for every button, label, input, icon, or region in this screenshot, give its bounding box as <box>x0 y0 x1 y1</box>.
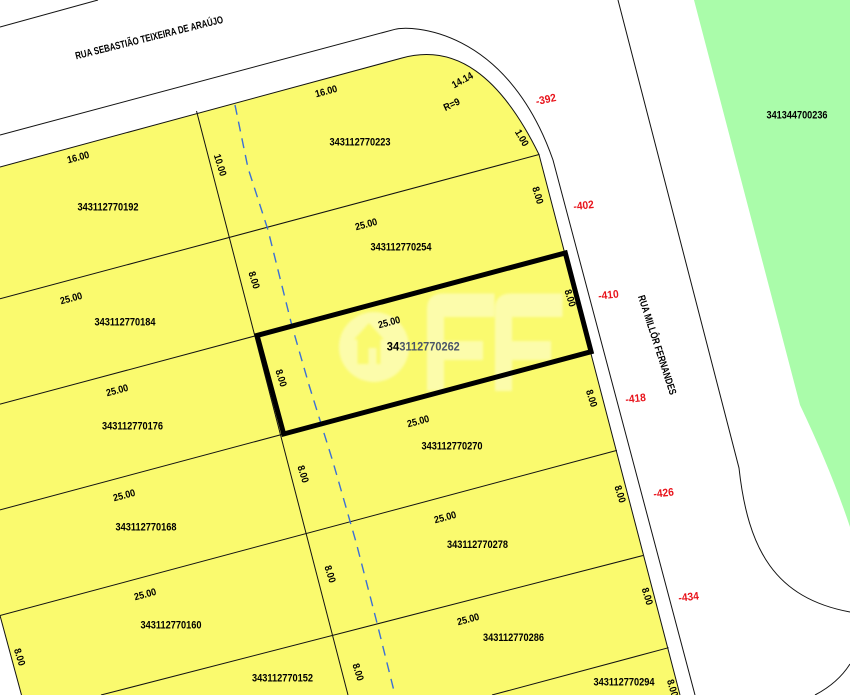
svg-text:-418: -418 <box>625 392 647 406</box>
svg-text:343112770270: 343112770270 <box>422 441 483 453</box>
svg-text:-434: -434 <box>678 590 700 604</box>
svg-text:343112770168: 343112770168 <box>116 522 177 534</box>
svg-text:34: 34 <box>387 342 400 354</box>
svg-text:-402: -402 <box>573 199 595 213</box>
svg-text:-426: -426 <box>653 486 675 500</box>
svg-text:343112770278: 343112770278 <box>447 539 508 551</box>
svg-text:3112770262: 3112770262 <box>399 342 459 354</box>
svg-text:343112770192: 343112770192 <box>78 202 139 214</box>
svg-text:343112770160: 343112770160 <box>141 620 202 632</box>
svg-text:343112770286: 343112770286 <box>483 632 544 644</box>
svg-text:343112770152: 343112770152 <box>252 673 313 685</box>
svg-text:341344700236: 341344700236 <box>767 110 828 122</box>
svg-text:343112770294: 343112770294 <box>594 677 656 689</box>
svg-text:343112770223: 343112770223 <box>330 137 391 149</box>
svg-text:343112770176: 343112770176 <box>102 421 163 433</box>
svg-text:-410: -410 <box>598 288 620 302</box>
svg-text:343112770254: 343112770254 <box>371 242 433 254</box>
svg-text:343112770184: 343112770184 <box>95 317 157 329</box>
